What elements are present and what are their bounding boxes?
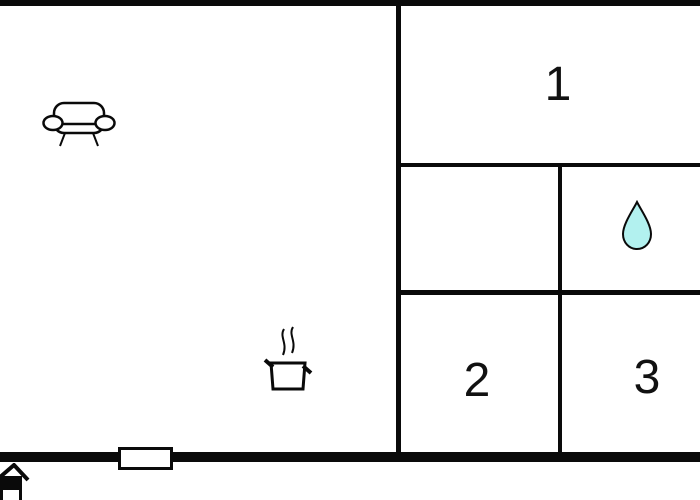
house-entrance-icon <box>0 463 30 500</box>
window-marker <box>118 447 173 470</box>
room-3 <box>562 295 700 452</box>
room-1-label: 1 <box>545 61 572 109</box>
room-living-area <box>0 6 396 452</box>
cooking-pot-icon <box>262 325 314 393</box>
sofa-icon <box>42 100 116 148</box>
room-3-label: 3 <box>634 354 661 402</box>
room-hall <box>401 167 558 290</box>
floor-plan: 1 2 3 <box>0 0 700 500</box>
water-drop-icon <box>619 200 655 252</box>
water-drop-shape <box>623 202 651 249</box>
room-2-label: 2 <box>464 357 491 405</box>
wall-bottom <box>0 452 700 462</box>
